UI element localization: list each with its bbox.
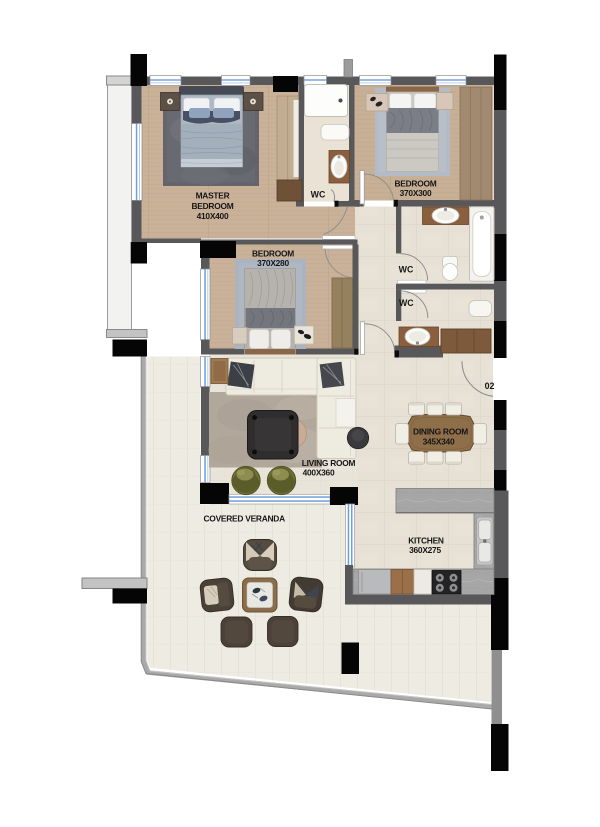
svg-text:410X400: 410X400	[197, 211, 229, 221]
svg-text:BEDROOM: BEDROOM	[395, 179, 437, 189]
svg-text:02: 02	[485, 381, 495, 391]
svg-text:WC: WC	[311, 190, 326, 200]
svg-text:DINING ROOM: DINING ROOM	[413, 427, 468, 437]
svg-text:WC: WC	[399, 298, 414, 308]
svg-text:370X300: 370X300	[400, 188, 432, 198]
svg-text:400X360: 400X360	[303, 468, 335, 478]
svg-text:LIVING ROOM: LIVING ROOM	[302, 458, 356, 468]
svg-text:BEDROOM: BEDROOM	[252, 249, 294, 259]
svg-text:BEDROOM: BEDROOM	[192, 201, 234, 211]
svg-text:WC: WC	[399, 265, 414, 275]
svg-text:360X275: 360X275	[409, 545, 441, 555]
svg-text:MASTER: MASTER	[196, 191, 230, 201]
svg-text:370X280: 370X280	[257, 258, 289, 268]
svg-text:COVERED VERANDA: COVERED VERANDA	[204, 514, 286, 524]
svg-text:345X340: 345X340	[423, 437, 455, 447]
svg-text:KITCHEN: KITCHEN	[408, 536, 444, 546]
